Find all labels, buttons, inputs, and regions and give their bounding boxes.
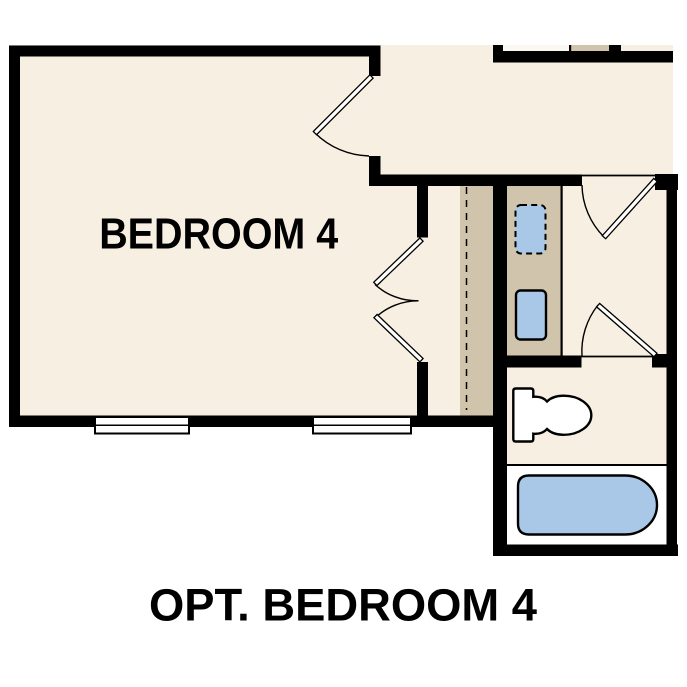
svg-text:OPT. BEDROOM 4: OPT. BEDROOM 4 [149,579,537,630]
svg-text:BEDROOM 4: BEDROOM 4 [99,210,338,259]
